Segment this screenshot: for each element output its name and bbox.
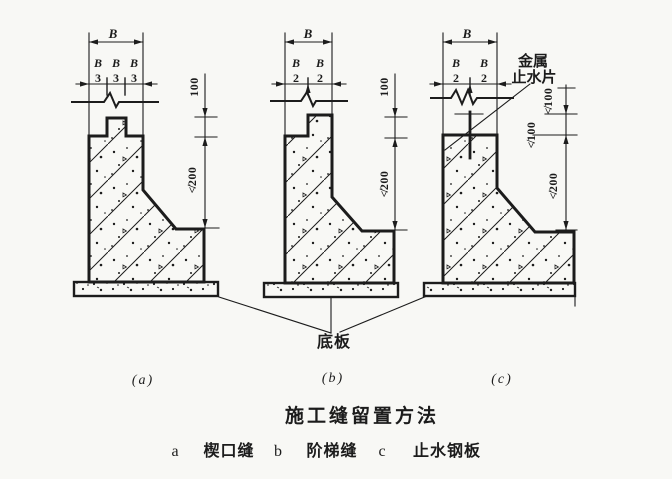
fraction-denominator: 2 [481,71,487,85]
figure-a-width-label: B [108,26,118,41]
figure-c: B B B 2 2 ≮100 ≮100 ≮200 [340,26,577,387]
fraction-denominator: 3 [113,71,119,85]
drawing-canvas: B B B B 3 3 3 100 ≮200 (a) [0,0,672,479]
legend-label-a: 楔口缝 [203,441,254,460]
fraction-numerator: B [129,56,138,70]
diagram-title: 施工缝留置方法 [285,404,439,427]
fraction-denominator: 3 [95,71,101,85]
legend-key-a: a [171,443,178,460]
vertical-dim-label-100: 100 [187,77,201,97]
base-slab [424,283,575,296]
legend: a 楔口缝 b 阶梯缝 c 止水钢板 [171,441,481,460]
figure-b-width-label: B [303,26,313,41]
vertical-dim-label-100-lower: ≮100 [524,122,538,149]
vertical-dim-label-100-upper: ≮100 [541,88,555,115]
base-slab [264,283,398,297]
waterstop-label-line2: 止水片 [511,68,556,86]
wall-section-stepped [285,115,394,283]
vertical-dim-label-200: ≮200 [377,171,391,198]
figure-c-width-dimension: B [443,26,497,45]
figure-b-label: (b) [322,371,344,386]
figure-a-subdivision-dimension: B B B 3 3 3 [76,56,157,95]
waterstop-label-line1: 金属 [517,52,548,70]
figure-a-label: (a) [132,373,154,388]
legend-key-c: c [378,443,385,460]
construction-joint-diagram: B B B B 3 3 3 100 ≮200 (a) [0,0,672,479]
fraction-numerator: B [93,56,102,70]
fraction-numerator: B [291,56,300,70]
fraction-denominator: 2 [453,71,459,85]
figure-a-width-dimension: B [89,26,143,45]
fraction-denominator: 3 [131,71,137,85]
vertical-dim-label-200: ≮200 [546,173,560,200]
fraction-denominator: 2 [293,71,299,85]
base-slab [74,282,218,296]
vertical-dim-label-200: ≮200 [185,167,199,194]
figure-c-subdivision-dimension: B B 2 2 [430,56,511,95]
fraction-numerator: B [479,56,488,70]
fraction-numerator: B [451,56,460,70]
break-line [72,93,158,107]
figure-b-width-dimension: B [285,26,332,45]
fraction-numerator: B [315,56,324,70]
wall-section-keyed [89,118,204,282]
wall-section-flat [443,135,574,283]
figure-c-label: (c) [491,372,513,387]
legend-label-c: 止水钢板 [413,441,481,460]
vertical-dim-label-100: 100 [377,77,391,97]
figure-b: B B B 2 2 100 ≮200 (b) [264,26,407,386]
legend-label-b: 阶梯缝 [306,441,357,460]
break-line [271,92,347,106]
slab-leader-line [219,297,331,333]
figure-b-subdivision-dimension: B B 2 2 [272,56,346,95]
fraction-denominator: 2 [317,71,323,85]
fraction-numerator: B [111,56,120,70]
legend-key-b: b [274,443,282,460]
base-slab-label: 底板 [317,332,351,351]
figure-c-width-label: B [462,26,472,41]
slab-leader-line [340,296,427,332]
